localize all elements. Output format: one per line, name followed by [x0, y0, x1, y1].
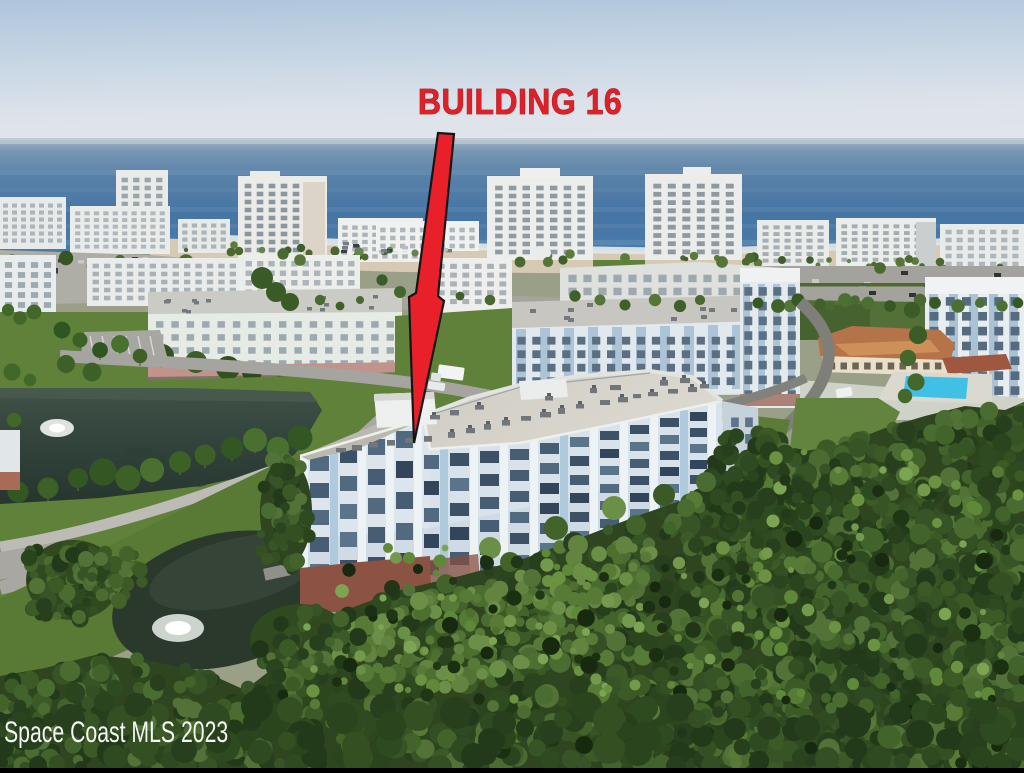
svg-text:Space Coast MLS 2023: Space Coast MLS 2023	[4, 717, 228, 749]
svg-text:BUILDING 16: BUILDING 16	[418, 82, 622, 122]
